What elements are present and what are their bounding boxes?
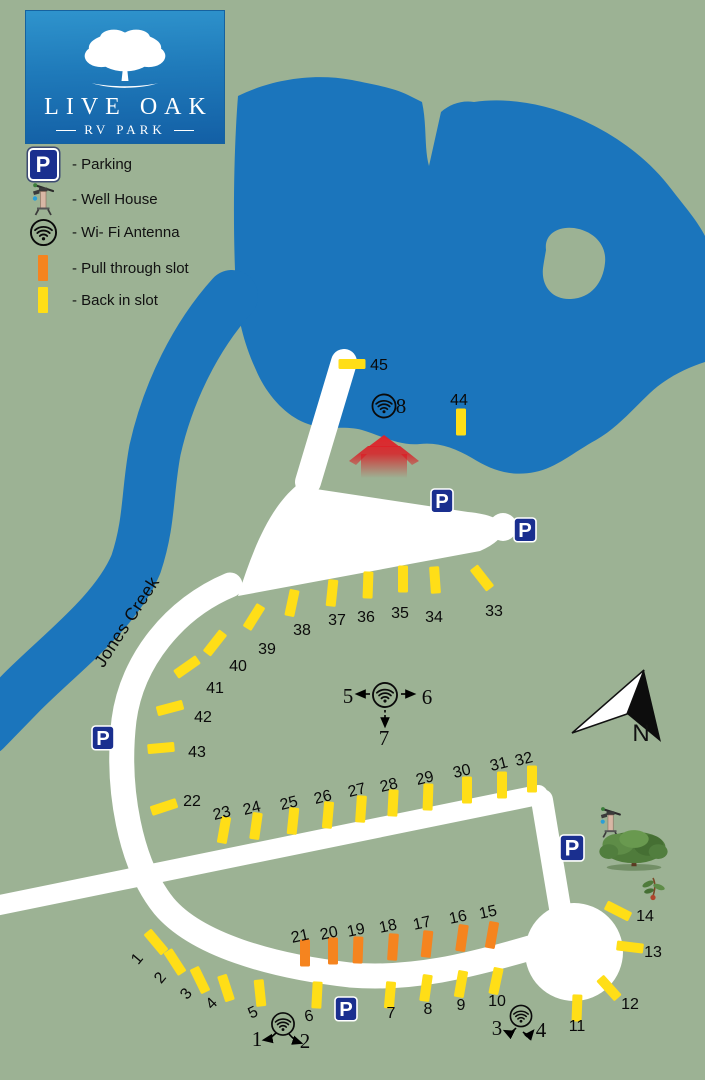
- slot-33: 33: [470, 564, 503, 620]
- slot-number: 21: [290, 926, 311, 946]
- parking-sign-letter: P: [565, 836, 580, 861]
- oak-tree: [599, 830, 667, 871]
- slot-20: 20: [319, 923, 340, 964]
- legend-label: - Back in slot: [72, 292, 158, 309]
- back-in-slot: [456, 409, 466, 436]
- parking-sign: P: [560, 835, 584, 861]
- back-in-slot: [163, 948, 186, 976]
- back-in-slot: [429, 566, 441, 594]
- wifi-slot-number: 3: [492, 1016, 503, 1040]
- back-in-slot: [470, 564, 495, 591]
- parking-sign-letter: P: [435, 491, 449, 513]
- parking-sign: P: [335, 997, 357, 1021]
- slot-17: 17: [412, 913, 434, 958]
- slot-number: 10: [488, 993, 506, 1010]
- slot-24: 24: [241, 798, 263, 840]
- slot-number: 17: [412, 913, 433, 933]
- slot-number: 15: [478, 902, 499, 922]
- well-house-icon: [30, 182, 56, 216]
- slot-number: 33: [485, 603, 503, 620]
- legend-item-parking: P - Parking: [26, 148, 132, 181]
- pull-through-slot: [455, 924, 469, 952]
- slot-4: 4: [203, 974, 235, 1013]
- slot-number: 14: [636, 908, 654, 925]
- road-east-cap: [489, 513, 517, 541]
- slot-number: 1: [128, 950, 147, 968]
- slot-29: 29: [414, 768, 435, 810]
- slot-39: 39: [243, 603, 276, 658]
- legend-item-pull-through: - Pull through slot: [26, 255, 189, 281]
- logo-title: LIVE OAK: [25, 94, 225, 121]
- slot-31: 31: [488, 754, 509, 798]
- wifi-antenna-icon: [373, 683, 397, 707]
- back-in-slot: [156, 700, 185, 717]
- slot-number: 9: [457, 997, 466, 1014]
- parking-sign: P: [514, 518, 536, 542]
- park-logo: LIVE OAK RV PARK: [25, 10, 225, 144]
- legend-item-well-house: - Well House: [26, 182, 158, 216]
- north-label: N: [632, 720, 649, 747]
- back-in-swatch: [38, 287, 48, 313]
- slot-number: 40: [229, 658, 247, 675]
- legend-label: - Well House: [72, 191, 158, 208]
- slot-12: 12: [596, 975, 639, 1013]
- legend-label: - Parking: [72, 156, 132, 173]
- wifi-slot-number: 8: [396, 394, 407, 418]
- slot-2: 2: [151, 948, 186, 987]
- back-in-slot: [143, 928, 168, 955]
- slot-number: 4: [203, 995, 221, 1013]
- back-in-slot: [254, 979, 267, 1007]
- parking-sign: P: [431, 489, 453, 513]
- slot-number: 43: [188, 744, 206, 761]
- slot-28: 28: [378, 775, 399, 817]
- back-in-slot: [190, 966, 211, 995]
- road-to-circle: [542, 800, 560, 908]
- slot-26: 26: [312, 787, 334, 829]
- rv-park-map: N 12345678910111213141516171819202122232…: [0, 0, 705, 1080]
- wifi-antenna-icon: [272, 1013, 294, 1035]
- road-diagonal: [0, 795, 538, 906]
- slot-number: 13: [644, 944, 662, 961]
- back-in-slot: [363, 571, 374, 598]
- back-in-slot: [217, 974, 235, 1003]
- slot-32: 32: [513, 749, 537, 792]
- direction-arrow: [264, 1033, 276, 1040]
- slot-number: 35: [391, 605, 409, 622]
- slot-15: 15: [478, 902, 500, 949]
- slot-10: 10: [488, 967, 506, 1010]
- slot-13: 13: [616, 940, 662, 961]
- slot-number: 8: [424, 1001, 433, 1018]
- slot-number: 37: [328, 612, 346, 629]
- slot-number: 38: [293, 622, 311, 639]
- slot-number: 16: [448, 907, 469, 927]
- slot-number: 22: [183, 793, 201, 810]
- wifi-slot-number: 2: [300, 1029, 311, 1053]
- back-in-slot: [243, 603, 266, 631]
- back-in-slot: [339, 359, 366, 369]
- back-in-slot: [150, 798, 179, 816]
- slot-number: 3: [177, 985, 196, 1003]
- slot-number: 19: [346, 920, 367, 940]
- slot-25: 25: [278, 793, 299, 835]
- logo-subtitle-text: RV PARK: [84, 122, 166, 138]
- slot-number: 2: [151, 969, 170, 987]
- slot-40: 40: [203, 629, 247, 675]
- legend-label: - Wi- Fi Antenna: [72, 224, 180, 241]
- parking-sign-icon: P: [28, 148, 59, 181]
- wifi-slot-number: 7: [379, 726, 390, 750]
- wifi-slot-number: 4: [536, 1018, 547, 1042]
- legend-item-wifi: - Wi- Fi Antenna: [26, 218, 180, 247]
- parking-sign: P: [92, 726, 114, 750]
- back-in-slot: [462, 777, 472, 804]
- slot-number: 36: [357, 609, 375, 626]
- parking-sign-letter: P: [518, 520, 532, 542]
- back-in-slot: [284, 589, 299, 617]
- slot-18: 18: [378, 916, 399, 960]
- slot-43: 43: [147, 742, 206, 761]
- slot-number: 45: [370, 357, 388, 374]
- lake: [234, 77, 705, 473]
- back-in-slot: [147, 742, 175, 754]
- legend-item-back-in: - Back in slot: [26, 287, 158, 313]
- slot-16: 16: [448, 907, 469, 952]
- slot-34: 34: [425, 566, 443, 626]
- back-in-slot: [326, 579, 339, 607]
- slot-23: 23: [211, 803, 232, 844]
- logo-dash-left: [56, 130, 76, 131]
- wifi-antenna-icon: [29, 218, 58, 247]
- wifi-5-6-7: 567: [343, 683, 433, 750]
- north-arrow: N: [572, 670, 661, 747]
- slot-number: 20: [319, 923, 340, 943]
- logo-dash-right: [174, 130, 194, 131]
- wifi-3-4: 34: [492, 1005, 547, 1042]
- wifi-slot-number: 5: [343, 684, 354, 708]
- direction-arrow: [523, 1031, 533, 1034]
- small-plant: [641, 878, 665, 900]
- direction-arrow: [505, 1028, 516, 1032]
- back-in-slot: [311, 981, 322, 1008]
- slot-6: 6: [303, 981, 323, 1026]
- back-in-slot: [527, 766, 537, 793]
- parking-sign-letter: P: [96, 728, 110, 750]
- slot-38: 38: [284, 589, 311, 639]
- slot-number: 39: [258, 641, 276, 658]
- logo-oak-icon: [74, 24, 176, 88]
- slot-number: 42: [194, 709, 212, 726]
- slot-22: 22: [150, 793, 201, 816]
- slot-30: 30: [451, 761, 472, 803]
- slot-number: 11: [569, 1018, 586, 1035]
- pull-through-slot: [387, 933, 399, 961]
- slot-number: 6: [303, 1007, 315, 1025]
- back-in-slot: [203, 629, 228, 656]
- slot-27: 27: [346, 780, 367, 823]
- back-in-slot: [173, 655, 201, 679]
- well-house-icon: [601, 807, 620, 837]
- slot-5: 5: [245, 979, 266, 1022]
- slot-35: 35: [391, 566, 409, 623]
- slot-19: 19: [346, 920, 367, 963]
- back-in-slot: [497, 772, 507, 799]
- slot-41: 41: [173, 655, 224, 697]
- slot-7: 7: [384, 981, 396, 1022]
- slot-37: 37: [326, 579, 346, 629]
- pull-through-slot: [353, 936, 364, 963]
- logo-subtitle: RV PARK: [25, 122, 225, 138]
- wifi-slot-number: 1: [252, 1027, 263, 1051]
- pull-through-swatch: [38, 255, 48, 281]
- back-in-slot: [398, 566, 408, 593]
- legend-label: - Pull through slot: [72, 260, 189, 277]
- slot-36: 36: [357, 571, 375, 626]
- parking-sign-letter: P: [339, 999, 353, 1021]
- slot-number: 41: [206, 680, 224, 697]
- slot-42: 42: [156, 700, 212, 726]
- slot-number: 34: [425, 609, 443, 626]
- slot-number: 12: [621, 996, 639, 1013]
- slot-1: 1: [128, 928, 168, 968]
- wifi-slot-number: 6: [422, 685, 433, 709]
- slot-number: 7: [387, 1005, 396, 1022]
- wifi-antenna-icon: [510, 1005, 531, 1026]
- pull-through-slot: [421, 930, 434, 958]
- slot-number: 44: [450, 392, 468, 409]
- slot-number: 18: [378, 916, 399, 936]
- wifi-1-2: 12: [252, 1013, 311, 1053]
